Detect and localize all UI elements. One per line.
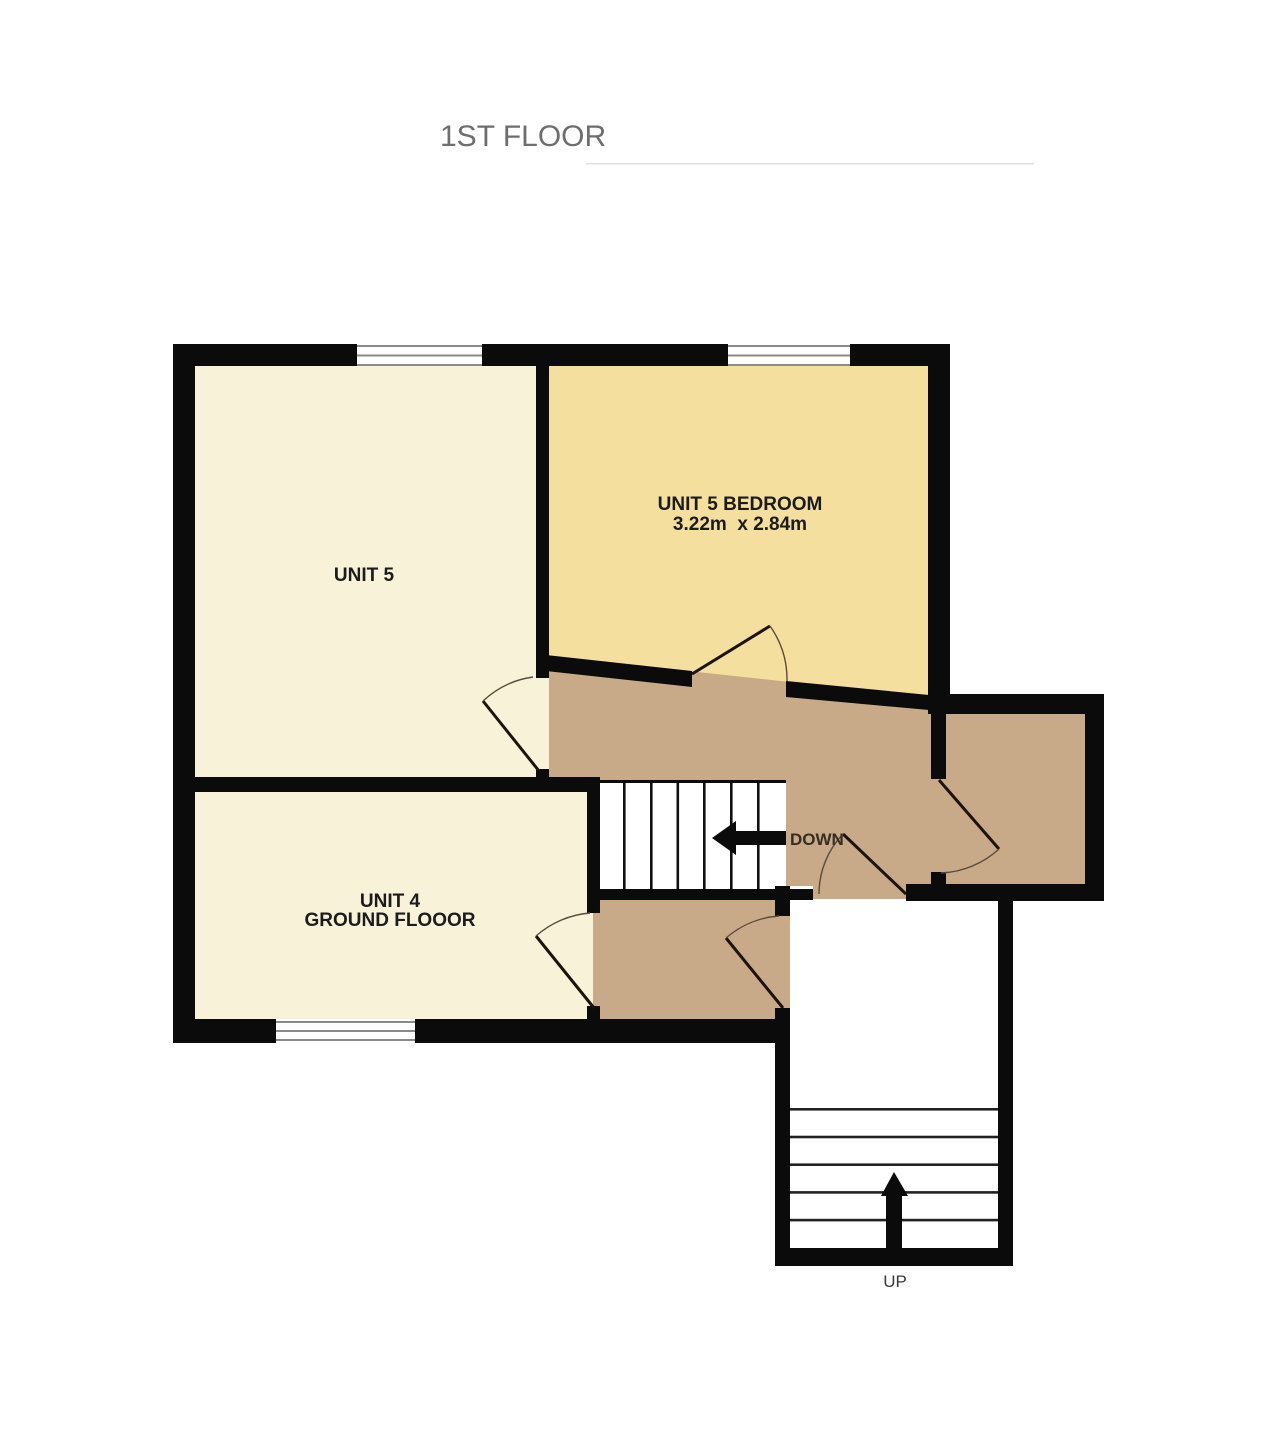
svg-text:UNIT 5 BEDROOM: UNIT 5 BEDROOM [658, 494, 823, 515]
svg-text:3.22m x 2.84m: 3.22m x 2.84m [673, 514, 807, 535]
svg-text:DOWN: DOWN [790, 830, 844, 849]
svg-text:1ST FLOOR: 1ST FLOOR [440, 120, 606, 153]
svg-text:UNIT 5: UNIT 5 [334, 565, 395, 586]
svg-text:UNIT 4: UNIT 4 [360, 891, 421, 912]
svg-text:GROUND FLOOOR: GROUND FLOOOR [305, 910, 476, 931]
svg-text:UP: UP [883, 1272, 907, 1291]
